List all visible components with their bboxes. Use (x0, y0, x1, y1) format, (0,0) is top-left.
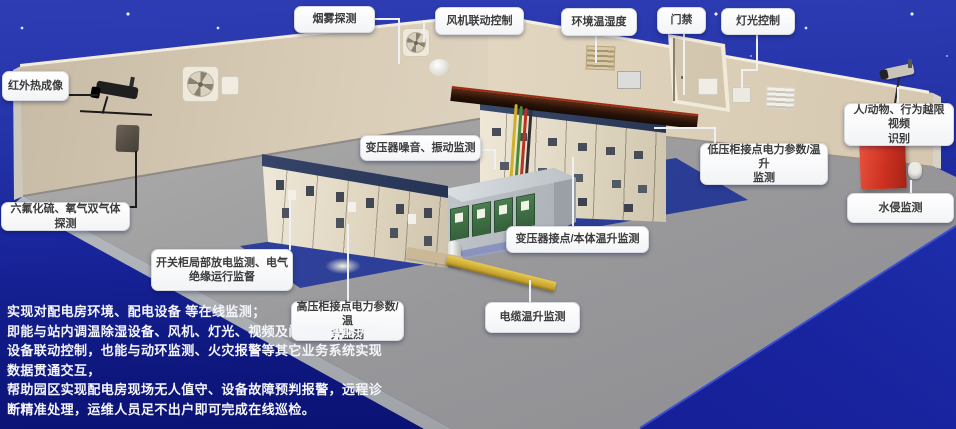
env-control-panel (617, 71, 641, 89)
callout-transformer-contact[interactable]: 变压器接点/本体温升监测 (506, 226, 649, 253)
connector-light-v2 (741, 69, 743, 88)
callout-smoke-detection[interactable]: 烟雾探测 (294, 6, 375, 33)
connector-smoke-v (398, 18, 400, 64)
exhaust-fan-icon (182, 66, 219, 102)
transformer-green-door (516, 193, 535, 229)
ir-camera-lens (90, 86, 101, 98)
callout-infrared-thermal-imaging[interactable]: 红外热成像 (2, 71, 69, 101)
connector-pd-v (289, 197, 291, 250)
door-gap (673, 38, 675, 101)
connector-lv-h (654, 127, 716, 129)
connector-hv-v (347, 224, 349, 302)
connector-ir-h (68, 94, 98, 96)
system-description: 实现对配电房环境、配电设备 等在线监测； 即能与站内调温除湿设备、风机、灯光、视… (7, 302, 477, 419)
callout-sf6-o2-gas[interactable]: 六氟化硫、氧气双气体探测 (1, 202, 130, 231)
smoke-detector-dome (429, 59, 450, 76)
wall-switch-box (221, 76, 239, 95)
callout-lv-cabinet[interactable]: 低压柜接点电力参数/温升 监测 (700, 143, 828, 185)
callout-fan-linkage-control[interactable]: 风机联动控制 (435, 7, 524, 35)
water-sensor (908, 162, 922, 179)
hv-cabinet-details (258, 148, 266, 158)
connector-light-v1 (756, 34, 758, 71)
fire-cabinet (859, 140, 907, 190)
access-reader (732, 87, 751, 103)
connector-light-h (741, 69, 758, 71)
callout-transformer-noise[interactable]: 变压器噪音、振动监测 (360, 135, 481, 161)
exhaust-fan2-icon (402, 28, 430, 57)
temp-humidity-sensor (586, 46, 616, 71)
callout-env-temp-humidity[interactable]: 环境温湿度 (561, 8, 637, 36)
callout-cable-temp[interactable]: 电缆温升监测 (485, 302, 580, 333)
cctv-camera-lens (879, 69, 889, 79)
connector-sf6-v (135, 151, 137, 208)
callout-person-animal-video[interactable]: 人/动物、行为越限视频 识别 (844, 103, 954, 146)
callout-light-control[interactable]: 灯光控制 (721, 8, 795, 35)
connector-water-v (910, 180, 912, 194)
connector-cable-v (529, 280, 531, 303)
connector-smoke-h (374, 18, 400, 20)
transformer-green-door (450, 205, 469, 241)
callout-door-access[interactable]: 门禁 (657, 7, 706, 34)
connector-fan-v (423, 20, 425, 42)
callout-switchgear-pd[interactable]: 开关柜局部放电监测、电气 绝缘运行监督 (151, 249, 293, 291)
callout-water-intrusion[interactable]: 水侵监测 (847, 193, 954, 223)
gas-detector (116, 125, 140, 153)
transformer-green-door (472, 201, 491, 237)
connector-lv-v (714, 127, 716, 144)
cctv-camera-mount (908, 59, 912, 68)
connector-person-v (897, 87, 899, 104)
power-room-monitoring-diagram: 烟雾探测 风机联动控制 环境温湿度 门禁 灯光控制 红外热成像 人/动物、行为越… (0, 0, 956, 429)
connector-door-v (683, 33, 685, 95)
louver-vent (765, 86, 795, 109)
connector-transformer-contact-v (572, 157, 574, 227)
connector-noise-v (494, 149, 496, 169)
connector-env-v (595, 35, 597, 63)
wall-box (698, 78, 718, 95)
